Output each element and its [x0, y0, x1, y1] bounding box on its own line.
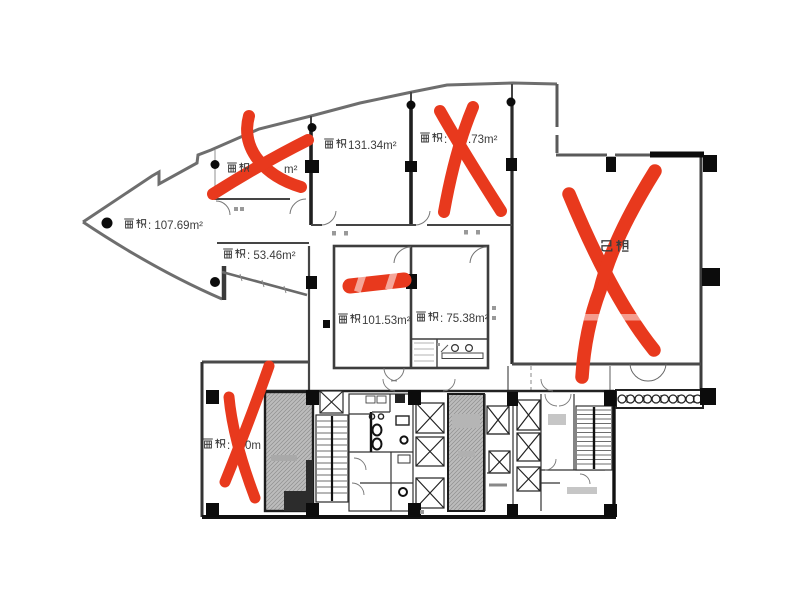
- svg-text:131.34m²: 131.34m²: [348, 140, 397, 152]
- svg-text:101.53m²: 101.53m²: [362, 315, 411, 327]
- svg-text:: 107.69m²: : 107.69m²: [148, 220, 203, 232]
- svg-text:.73m²: .73m²: [468, 134, 498, 146]
- svg-text:: 53.46m²: : 53.46m²: [247, 250, 296, 262]
- svg-text:: 75.38m²: : 75.38m²: [440, 313, 489, 325]
- svg-text::: :: [227, 440, 230, 452]
- svg-text::: :: [444, 134, 447, 146]
- svg-text:0m: 0m: [245, 440, 261, 452]
- svg-text:m²: m²: [284, 164, 298, 176]
